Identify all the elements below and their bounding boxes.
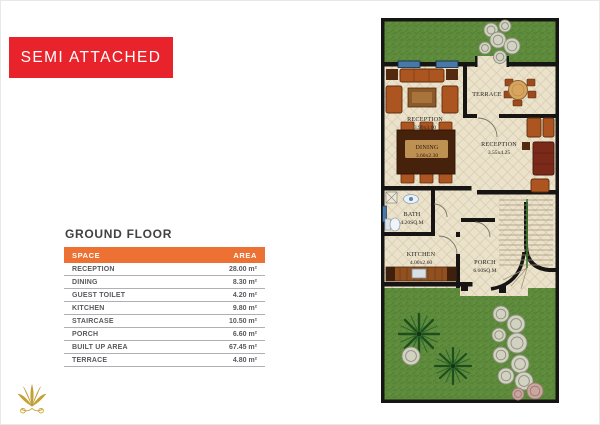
col-space: SPACE xyxy=(72,251,100,260)
row-area: 10.50 m² xyxy=(229,318,257,325)
label-reception-front: RECEPTION xyxy=(407,116,443,123)
table-row: RECEPTION 28.00 m² xyxy=(64,263,265,276)
row-area: 6.60 m² xyxy=(233,331,257,338)
row-space: STAIRCASE xyxy=(72,318,114,325)
table-row: KITCHEN 9.80 m² xyxy=(64,302,265,315)
label-porch: PORCH xyxy=(474,259,496,266)
section-heading: GROUND FLOOR xyxy=(65,227,265,241)
row-space: BUILT UP AREA xyxy=(72,344,128,351)
brochure-page: SEMI ATTACHED GROUND FLOOR SPACE AREA RE… xyxy=(0,0,600,425)
kitchen-counter xyxy=(386,267,456,281)
ground-floor-section: GROUND FLOOR SPACE AREA RECEPTION 28.00 … xyxy=(64,227,265,367)
area-table: SPACE AREA RECEPTION 28.00 m² DINING 8.3… xyxy=(64,247,265,367)
title-banner: SEMI ATTACHED xyxy=(9,37,173,78)
label-kitchen-dims: 4.00x2.60 xyxy=(410,260,433,266)
garden-front xyxy=(385,22,556,63)
row-area: 4.80 m² xyxy=(233,357,257,364)
label-reception-side: RECEPTION xyxy=(481,141,517,148)
row-space: DINING xyxy=(72,279,98,286)
row-area: 28.00 m² xyxy=(229,266,257,273)
label-dining: DINING xyxy=(415,144,439,151)
row-space: KITCHEN xyxy=(72,305,105,312)
table-row: DINING 8.30 m² xyxy=(64,276,265,289)
label-reception-side-dims: 3.55x4.25 xyxy=(488,150,511,156)
sofa-set xyxy=(386,69,458,113)
row-area: 4.20 m² xyxy=(233,292,257,299)
page-title: SEMI ATTACHED xyxy=(21,49,162,67)
row-area: 67.45 m² xyxy=(229,344,257,351)
label-bath: BATH xyxy=(404,211,421,218)
row-space: GUEST TOILET xyxy=(72,292,125,299)
table-row: BUILT UP AREA 67.45 m² xyxy=(64,341,265,354)
row-space: TERRACE xyxy=(72,357,107,364)
row-area: 8.30 m² xyxy=(233,279,257,286)
label-reception-front-dims: 3.90x3.60 xyxy=(414,125,437,131)
row-space: PORCH xyxy=(72,331,98,338)
table-header-row: SPACE AREA xyxy=(64,247,265,263)
row-space: RECEPTION xyxy=(72,266,115,273)
table-row: GUEST TOILET 4.20 m² xyxy=(64,289,265,302)
label-dining-dims: 3.60x2.30 xyxy=(416,153,439,159)
label-terrace: TERRACE xyxy=(472,91,502,98)
table-row: PORCH 6.60 m² xyxy=(64,328,265,341)
table-row: TERRACE 4.80 m² xyxy=(64,354,265,367)
brand-logo-icon xyxy=(14,381,50,415)
floor-plan: RECEPTION 3.90x3.60 TERRACE RECEPTION 3.… xyxy=(381,18,559,403)
label-bath-dims: 4.20SQ.M xyxy=(400,220,423,226)
col-area: AREA xyxy=(233,251,257,260)
table-row: STAIRCASE 10.50 m² xyxy=(64,315,265,328)
label-kitchen: KITCHEN xyxy=(407,251,436,258)
row-area: 9.80 m² xyxy=(233,305,257,312)
label-porch-dims: 6.60SQ.M xyxy=(473,268,496,274)
